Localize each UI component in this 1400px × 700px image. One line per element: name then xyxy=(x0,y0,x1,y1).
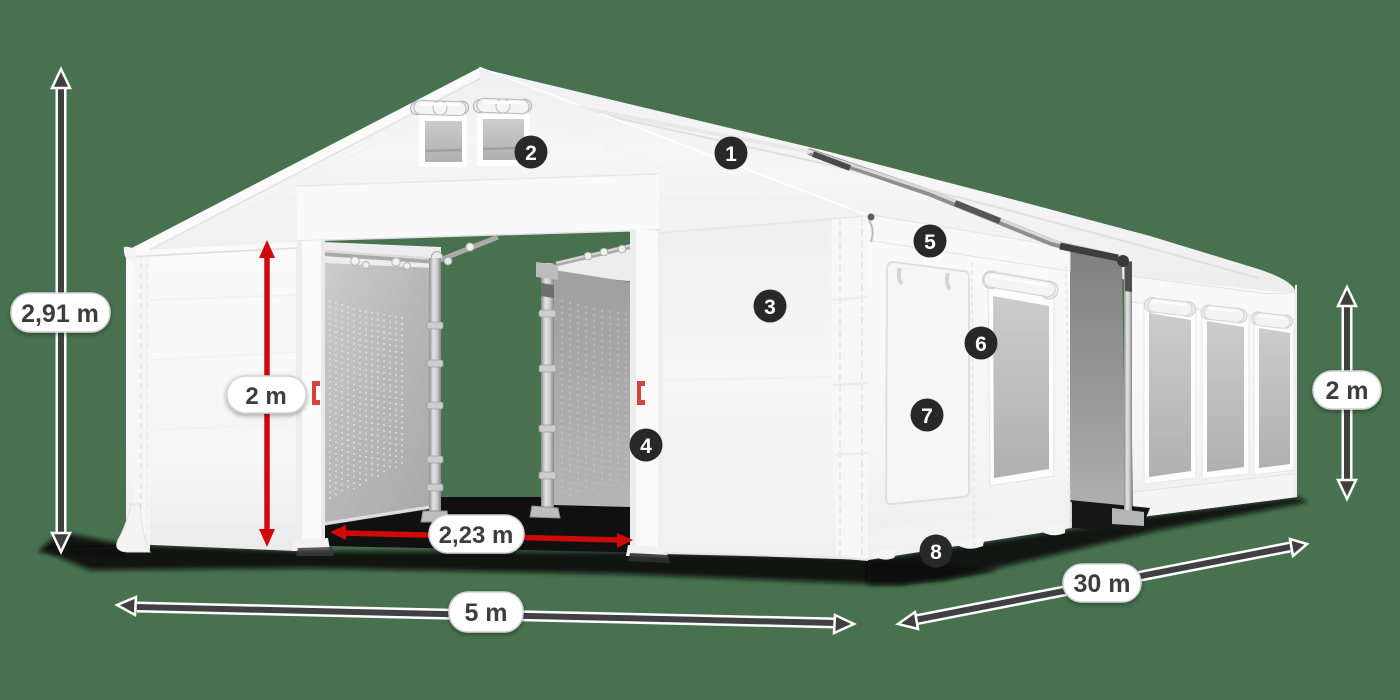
svg-text:4: 4 xyxy=(640,435,652,458)
svg-text:2 m: 2 m xyxy=(1325,377,1368,405)
svg-text:2,91 m: 2,91 m xyxy=(21,300,99,328)
svg-text:6: 6 xyxy=(975,333,987,356)
svg-text:2,23 m: 2,23 m xyxy=(439,522,514,549)
svg-text:8: 8 xyxy=(930,541,942,564)
svg-text:1: 1 xyxy=(725,143,737,166)
svg-text:2: 2 xyxy=(525,142,537,165)
svg-text:2 m: 2 m xyxy=(245,383,286,410)
svg-text:5 m: 5 m xyxy=(464,599,507,627)
svg-text:7: 7 xyxy=(921,405,933,428)
svg-text:30 m: 30 m xyxy=(1074,570,1131,598)
svg-text:3: 3 xyxy=(764,296,776,319)
svg-text:5: 5 xyxy=(924,231,936,254)
